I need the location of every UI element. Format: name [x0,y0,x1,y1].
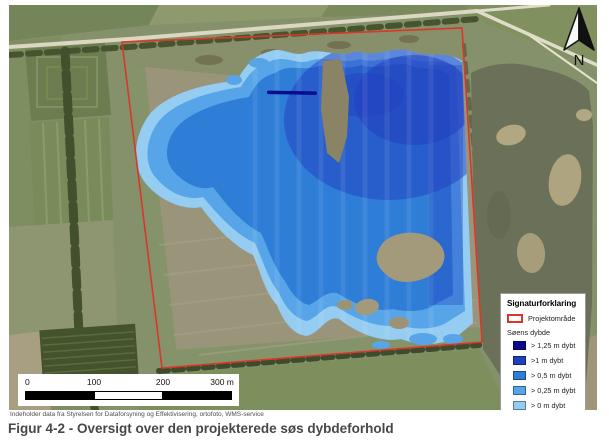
legend-row: > 0,25 m dybt [513,386,580,395]
scale-bar: 0 100 200 300 m [18,374,239,406]
project-area-label: Projektområde [528,314,575,323]
legend-row-project: Projektområde [507,314,580,323]
scale-tick: 0 [25,377,30,387]
depth-swatch [513,356,526,365]
scale-tick: 300 m [210,377,234,387]
scale-bar-segment [94,392,164,399]
legend-row: > 1,25 m dybt [513,341,580,350]
depth-swatch [513,341,526,350]
legend-panel: Signaturforklaring Projektområde Søens d… [500,293,586,410]
depth-label: >1 m dybt [531,356,563,365]
scale-tick: 100 [87,377,101,387]
legend-row: > 0,5 m dybt [513,371,580,380]
scale-bar-segment [26,392,94,399]
north-label: N [574,52,585,68]
figure-caption: Figur 4-2 - Oversigt over den projektere… [8,421,394,436]
legend-row: >1 m dybt [513,356,580,365]
depth-swatch [513,386,526,395]
depth-label: > 0,5 m dybt [531,371,571,380]
depth-label: > 0,25 m dybt [531,386,575,395]
attribution-text: Indeholder data fra Styrelsen for Datafo… [10,411,264,418]
depth-label: > 0 m dybt [531,401,565,410]
scale-bar-segments [25,391,232,400]
north-arrow-icon: N [558,6,597,68]
legend-title: Signaturforklaring [507,299,580,308]
legend-row: > 0 m dybt [513,401,580,410]
project-area-swatch [507,314,523,323]
depth-swatch [513,401,526,410]
figure-page: N 0 100 200 300 m Signaturforklaring Pro… [0,0,609,445]
legend-depth-header: Søens dybde [507,328,580,337]
scale-tick-labels: 0 100 200 300 m [25,377,232,389]
scale-bar-segment [163,392,231,399]
depth-swatch [513,371,526,380]
depth-label: > 1,25 m dybt [531,341,575,350]
map-canvas: N 0 100 200 300 m Signaturforklaring Pro… [9,5,597,410]
scale-tick: 200 [156,377,170,387]
